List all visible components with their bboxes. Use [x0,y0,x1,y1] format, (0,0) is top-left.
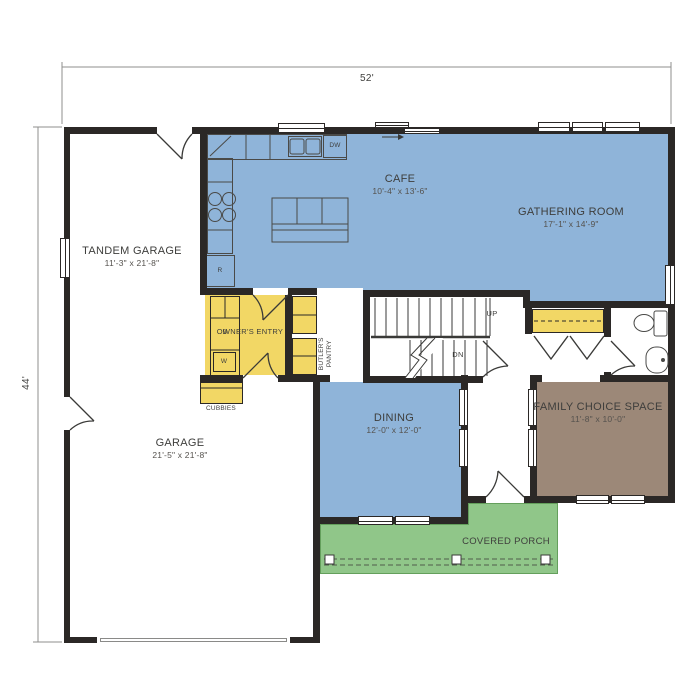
wall-garage-right [313,375,320,643]
wall-family-top-left [530,375,542,382]
room-label-family-choice: FAMILY CHOICE SPACE 11'-8" x 10'-0" [518,401,678,424]
window-gathering-right [665,265,675,305]
room-label-butlers-pantry: BUTLER'S PANTRY [318,328,334,380]
stair-break-lines [405,338,435,378]
label-cubbies: CUBBIES [191,405,251,413]
closet-shelf [532,309,604,333]
wall-family-top-right [600,375,675,382]
window-dining-porch-1 [358,516,393,525]
wall-powder-left-lower [604,372,611,378]
toilet [634,311,667,336]
room-label-tandem-garage: TANDEM GARAGE 11'-3" x 21'-8" [62,245,202,268]
room-label-gathering: GATHERING ROOM 17'-1" x 14'-9" [491,206,651,229]
door-opening-owners-cafe [253,288,288,295]
window-kitchen-sink [278,123,325,133]
label-dishwasher: DW [324,142,346,150]
room-label-cafe: CAFE 10'-4" x 13'-6" [340,173,460,196]
bath-sink [646,347,668,373]
wall-stair-bottom [363,376,483,383]
wall-left [64,127,70,643]
overall-width-dimension: 52' [337,73,397,85]
room-dining-fill [320,382,461,517]
label-stairs-up: UP [482,310,502,319]
staircase [371,298,490,376]
window-dining-foyer-1 [459,389,468,426]
room-label-covered-porch: COVERED PORCH [446,536,566,547]
window-gathering-top-2 [572,122,603,132]
window-gathering-top-3 [605,122,640,132]
window-gathering-top-1 [538,122,570,132]
wall-closet-left-jamb [525,308,532,334]
room-label-garage: GARAGE 21'-5" x 21'-8" [110,437,250,460]
wall-connector [523,290,530,301]
door-opening-garage-left [64,397,70,430]
closet-bifold-doors [534,336,604,359]
wall-powder-left-upper [604,308,611,337]
door-opening-front [486,496,524,503]
room-label-dining: DINING 12'-0" x 12'-0" [334,412,454,435]
label-refrigerator: R [210,267,230,275]
label-washer: W [214,358,234,366]
window-dining-foyer-2 [459,429,468,467]
pantry-cabinet-upper [292,296,317,334]
door-opening-owners-garage [243,375,278,382]
porch-fill-entry [468,503,558,525]
overall-height-dimension: 44' [21,353,33,413]
window-family-bottom-1 [576,495,609,504]
porch-fill-main [320,524,558,574]
room-family-choice-fill [537,382,668,496]
window-family-bottom-2 [611,495,645,504]
kitchen-sink-box [288,136,322,157]
cubbies-box [200,382,243,404]
garage-door-panel [100,638,287,642]
wall-tandem-right [200,127,207,295]
label-dryer: D [215,329,235,337]
window-dining-porch-2 [395,516,430,525]
slider-panel-right [404,128,440,134]
kitchen-counter-left [207,158,233,254]
wall-stair-top [363,290,530,297]
floor-plan: 52' 44' TANDEM GARAGE 11'-3" x 21'-8" CA… [0,0,700,700]
wall-gathering-bottom [523,301,675,308]
wall-stair-left [363,290,370,383]
label-stairs-down: DN [448,351,468,360]
door-opening-tandem-top [157,127,192,134]
wall-right [668,127,675,503]
stair-break-mask [405,338,443,378]
pantry-cabinet-lower [292,338,317,375]
window-foyer-right-2 [528,429,537,467]
